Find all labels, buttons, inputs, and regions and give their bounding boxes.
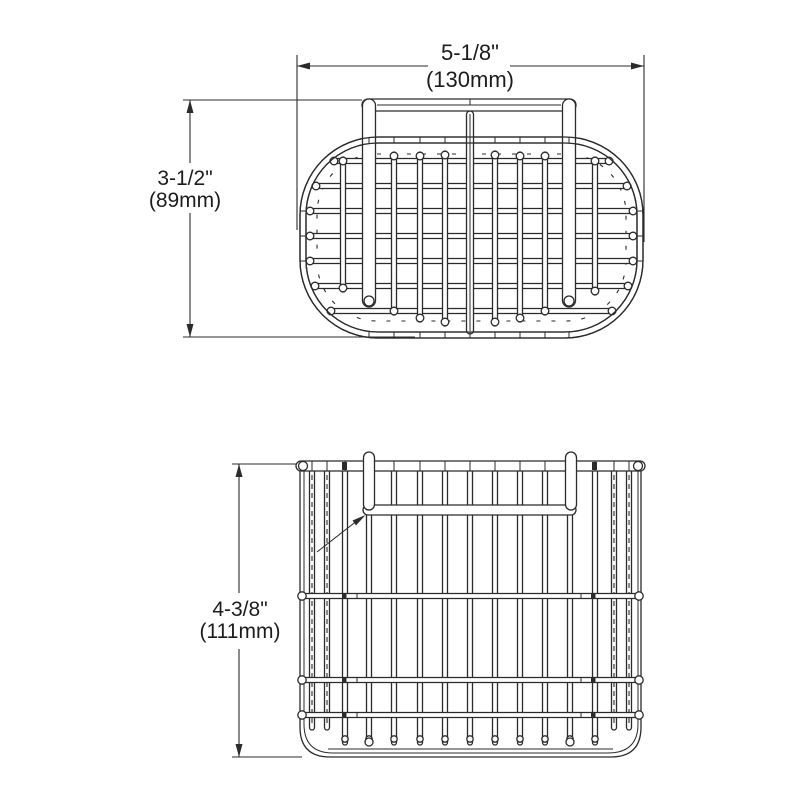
front-wire-horizontal — [301, 713, 640, 718]
wire-end — [541, 307, 549, 315]
width-value-mm: (130mm) — [426, 67, 514, 92]
wire-end — [298, 592, 306, 600]
wire-end — [441, 151, 449, 159]
grid-wire-vertical — [518, 152, 523, 322]
handle-post-right — [563, 99, 576, 307]
grid-wire-vertical — [392, 152, 397, 315]
depth-value-inches: 3-1/2" — [157, 167, 212, 190]
front-wire-vertical — [593, 462, 598, 745]
wire-clip — [591, 677, 596, 683]
grid-wire-vertical — [418, 152, 423, 322]
wire-end — [635, 592, 643, 600]
wire-end — [416, 314, 424, 322]
wire-end — [306, 207, 314, 215]
handle-post-left — [364, 452, 375, 510]
wire-end — [635, 711, 643, 719]
wire-end — [339, 284, 347, 292]
wire-end — [629, 232, 637, 240]
wire-end — [591, 157, 599, 165]
grid-wire-vertical — [443, 151, 448, 326]
wire-bottom-loop — [517, 736, 523, 742]
handle-crossbar — [363, 505, 576, 515]
wire-end — [608, 307, 616, 315]
wire-end — [516, 152, 524, 160]
wire-end — [416, 152, 424, 160]
wire-end — [591, 287, 599, 295]
wire-bottom-loop — [342, 736, 348, 742]
wire-end — [327, 307, 335, 315]
wire-end — [491, 318, 499, 326]
wire-end — [491, 151, 499, 159]
front-wire-horizontal — [301, 594, 640, 599]
technical-drawing: 5-1/8" (130mm) 3-1/2" (89mm) 4-3/8" (111… — [0, 0, 800, 800]
front-wire-horizontal — [301, 678, 640, 683]
wire-clip — [342, 593, 347, 599]
wire-end — [635, 676, 643, 684]
wire-end — [298, 676, 306, 684]
wire-bottom-loop — [417, 736, 423, 742]
rim-end-ball — [634, 462, 643, 471]
front-wire-vertical — [343, 462, 348, 745]
grid-wire-vertical — [543, 152, 548, 315]
wire-end — [441, 318, 449, 326]
wire-bottom-loop — [492, 736, 498, 742]
wire-bottom-loop — [391, 736, 397, 742]
grid-wire-vertical — [493, 151, 498, 326]
wire-bottom-loop — [467, 736, 473, 742]
wire-end — [306, 257, 314, 265]
wire-end — [339, 157, 347, 165]
handle-post-end — [364, 296, 374, 306]
wire-end — [541, 152, 549, 160]
wire-end — [516, 314, 524, 322]
wire-clip — [591, 593, 596, 599]
wire-end — [629, 207, 637, 215]
wire-bottom-loop — [566, 738, 574, 746]
handle-post-end — [564, 296, 574, 306]
drawing-canvas: 5-1/8" (130mm) 3-1/2" (89mm) 4-3/8" (111… — [0, 0, 800, 800]
wire-clip — [591, 712, 596, 718]
handle-post-left — [363, 99, 376, 307]
handle-post-right — [566, 452, 577, 510]
depth-value-mm: (89mm) — [149, 189, 221, 212]
rim-end-ball — [299, 462, 308, 471]
wire-end — [298, 711, 306, 719]
wire-bottom-loop — [442, 736, 448, 742]
wire-bottom-loop — [365, 738, 373, 746]
wire-end — [306, 232, 314, 240]
wire-end — [629, 257, 637, 265]
grid-wire-vertical — [341, 157, 346, 292]
grid-wire-vertical — [593, 157, 598, 295]
rim-clip — [342, 462, 347, 470]
wire-end — [390, 307, 398, 315]
wire-end — [390, 152, 398, 160]
width-value-inches: 5-1/8" — [441, 40, 499, 65]
wire-clip — [342, 712, 347, 718]
rim-clip — [592, 462, 597, 470]
height-value-inches: 4-3/8" — [212, 598, 267, 621]
wire-clip — [342, 677, 347, 683]
wire-bottom-loop — [542, 736, 548, 742]
height-value-mm: (111mm) — [200, 620, 281, 643]
wire-bottom-loop — [592, 736, 598, 742]
